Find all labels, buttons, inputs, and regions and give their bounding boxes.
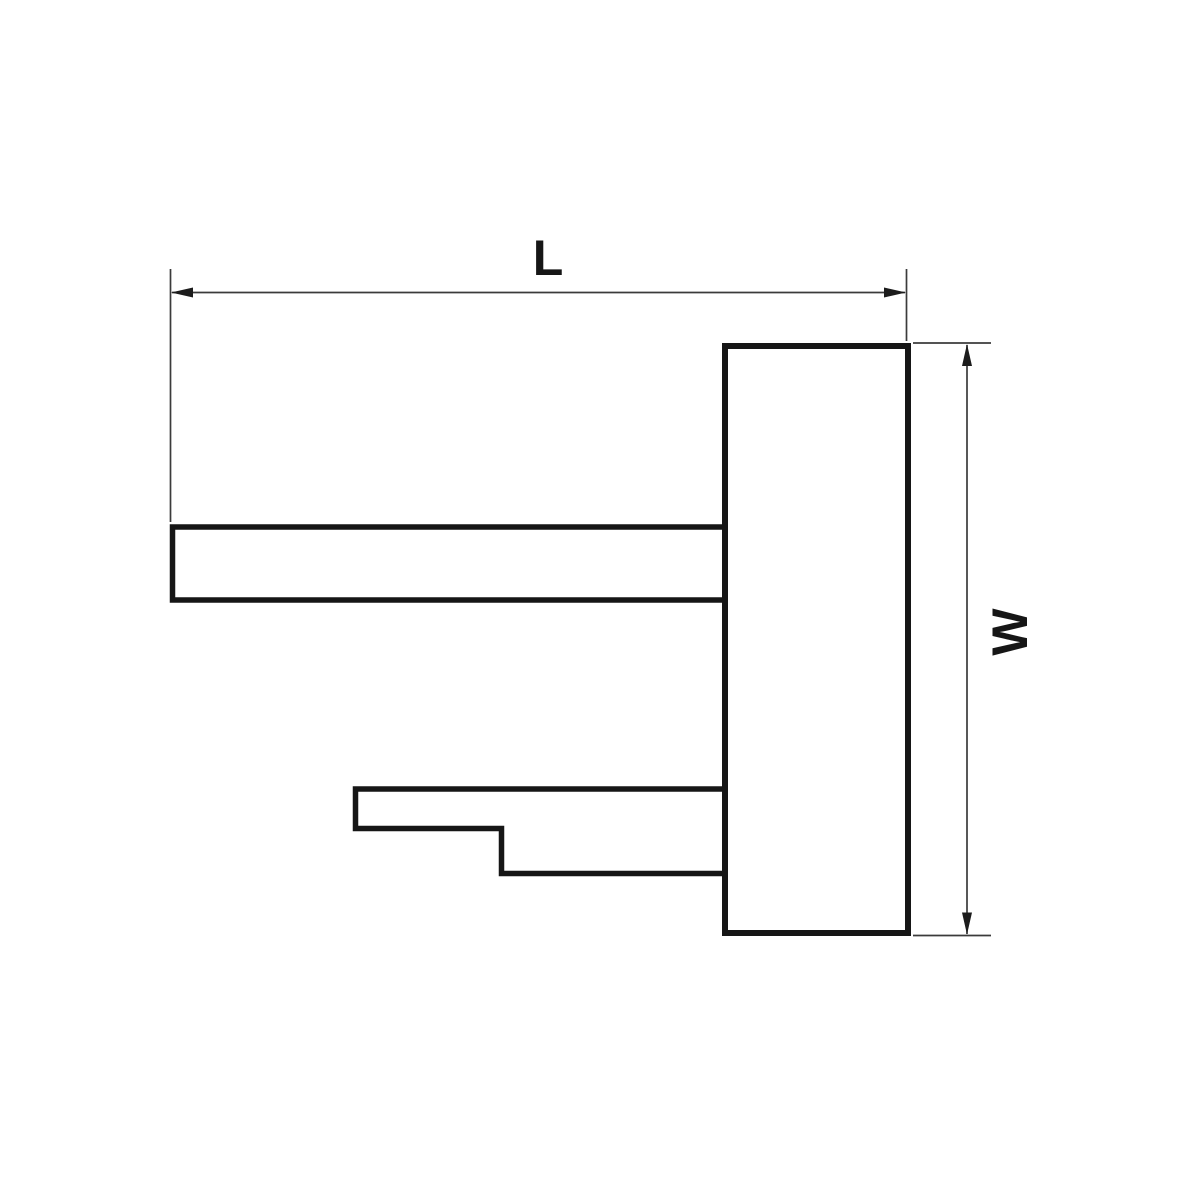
width-dimension: W [913, 343, 1038, 936]
width-dimension-label: W [982, 608, 1038, 656]
upper-arm-outline [173, 527, 726, 600]
technical-drawing-canvas: L W [0, 0, 1200, 1200]
width-arrow-bottom [962, 913, 972, 935]
part-outline [173, 346, 909, 933]
length-arrow-left [171, 288, 193, 298]
length-arrow-right [884, 288, 906, 298]
lower-stepped-arm-outline [356, 789, 726, 874]
part-dimension-drawing: L W [0, 0, 1200, 1200]
length-dimension-label: L [533, 230, 564, 286]
length-dimension: L [171, 230, 907, 522]
part-body-rect [725, 346, 908, 933]
width-arrow-top [962, 344, 972, 366]
